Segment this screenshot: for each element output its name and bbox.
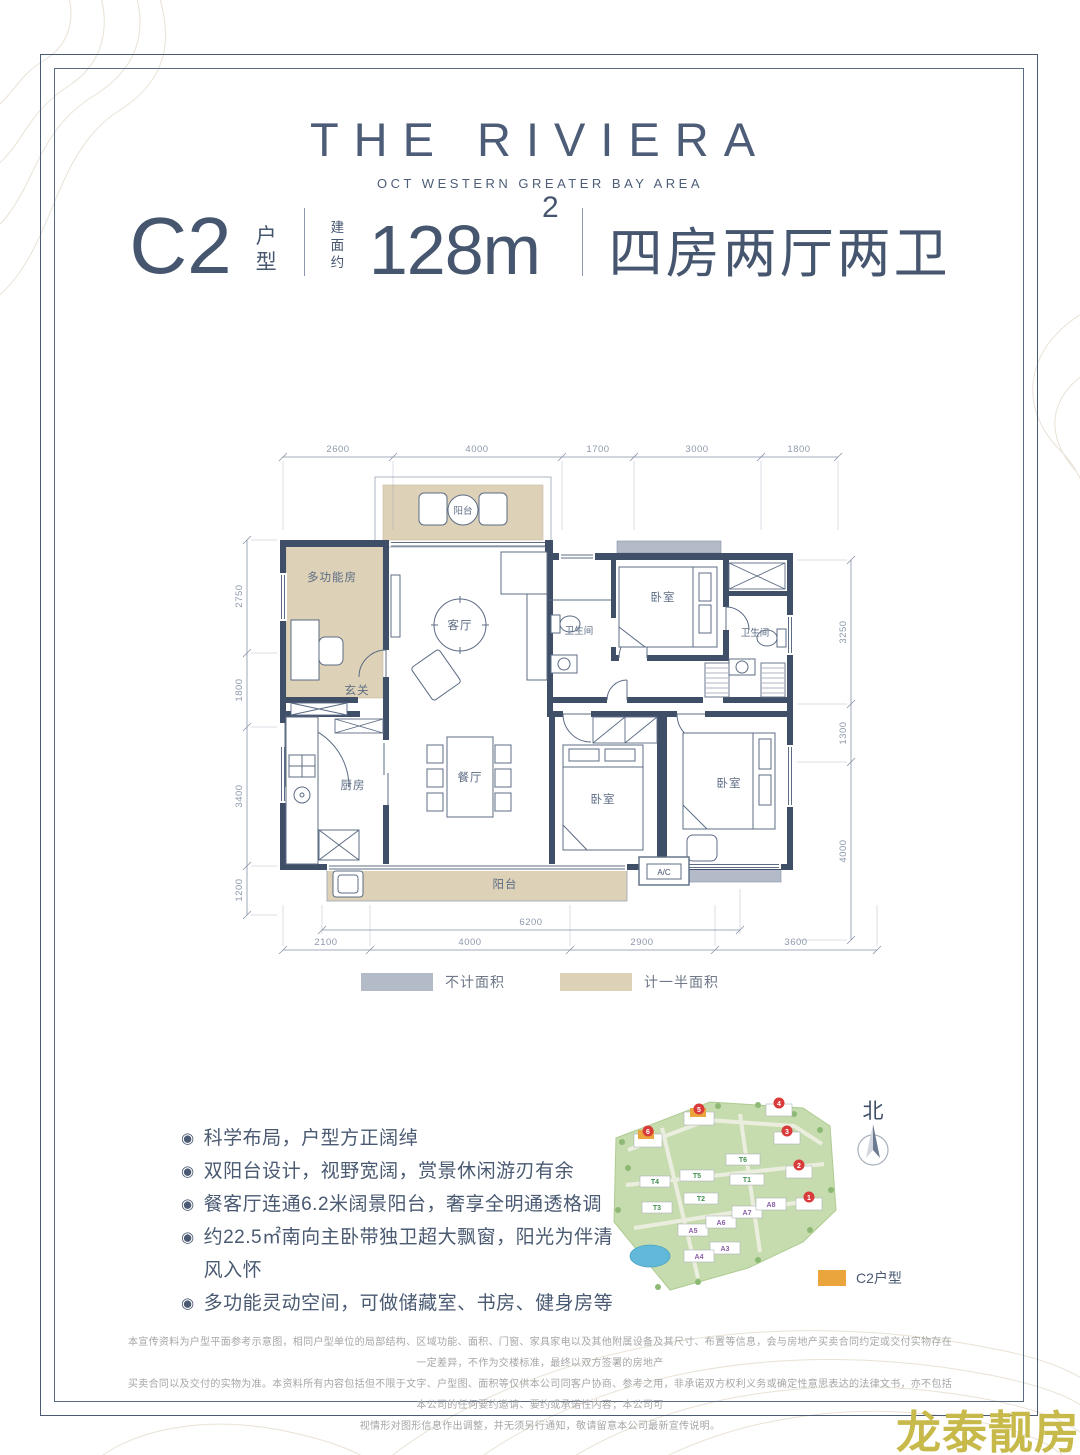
room-label-living: 客厅 [448, 618, 473, 632]
svg-text:6200: 6200 [519, 917, 542, 928]
project-title: THE RIVIERA [0, 112, 1080, 167]
watermark-logo: 龙泰靓房 [896, 1396, 1080, 1455]
area-exponent: 2 [542, 191, 558, 224]
feature-item: ◉双阳台设计，视野宽阔，赏景休闲游刃有余 [181, 1155, 631, 1188]
svg-text:1: 1 [807, 1195, 811, 1202]
svg-text:T1: T1 [743, 1177, 751, 1184]
svg-text:A6: A6 [717, 1220, 726, 1227]
room-label-entry: 玄关 [345, 683, 370, 697]
room-label-bedroom-top: 卧室 [651, 590, 676, 604]
svg-text:2: 2 [797, 1163, 801, 1170]
disclaimer-line-3: 视情形对图形信息作出调整，并无须另行通知，敬请留意本公司最新宣传说明。 [125, 1416, 955, 1437]
room-label-bedroom-mid: 卧室 [591, 792, 616, 806]
svg-text:T6: T6 [739, 1157, 747, 1164]
disclaimer-text: 本宣传资料为户型平面参考示意图，相同户型单位的局部结构、区域功能、面积、门窗、家… [125, 1332, 955, 1437]
excluded-area-label: 不计面积 [445, 972, 505, 992]
feature-list: ◉科学布局，户型方正阔绰 ◉双阳台设计，视野宽阔，赏景休闲游刃有余 ◉餐客厅连通… [181, 1122, 631, 1320]
room-label-balcony-bottom: 阳台 [493, 877, 518, 891]
svg-text:1700: 1700 [586, 444, 609, 455]
svg-text:2750: 2750 [234, 584, 245, 607]
unit-spec-row: C2 户型 建面约 128m2 四房两厅两卫 [0, 208, 1080, 280]
feature-item: ◉餐客厅连通6.2米阔景阳台，奢享全明通透格调 [181, 1188, 631, 1221]
feature-text: 约22.5㎡南向主卧带独卫超大飘窗，阳光为伴清风入怀 [204, 1221, 631, 1287]
north-label: 北 [863, 1100, 884, 1123]
project-subtitle: OCT WESTERN GREATER BAY AREA [0, 176, 1080, 191]
svg-text:1300: 1300 [838, 721, 849, 744]
area-legend: 不计面积 计一半面积 [0, 972, 1080, 992]
half-area-swatch [560, 973, 632, 991]
svg-text:6: 6 [646, 1129, 650, 1136]
svg-text:T5: T5 [693, 1173, 701, 1180]
bullet-icon: ◉ [181, 1221, 195, 1287]
floorplan-drawing: 阳台 多功能房 客厅 卫生间 卧室 卫生间 玄关 厨房 餐厅 卧室 卧室 阳台 … [215, 415, 895, 975]
unit-suffix: 户型 [256, 224, 278, 277]
room-label-bath2: 卫生间 [741, 627, 770, 639]
feature-text: 餐客厅连通6.2米阔景阳台，奢享全明通透格调 [204, 1188, 602, 1221]
svg-text:3: 3 [785, 1129, 789, 1136]
feature-text: 科学布局，户型方正阔绰 [204, 1122, 419, 1155]
feature-item: ◉科学布局，户型方正阔绰 [181, 1122, 631, 1155]
room-label-dining: 餐厅 [458, 770, 483, 784]
legend-item-excluded: 不计面积 [361, 972, 505, 992]
site-plan-map: T1 T2 T3 T4 T5 T6 A3 A4 A5 A6 A7 A8 1 2 … [598, 1090, 848, 1305]
brand-block: THE RIVIERA OCT WESTERN GREATER BAY AREA [0, 112, 1080, 191]
feature-item: ◉多功能灵动空间，可做储藏室、书房、健身房等 [181, 1287, 631, 1320]
feature-text: 多功能灵动空间，可做储藏室、书房、健身房等 [204, 1287, 614, 1320]
c2-unit-swatch [818, 1270, 846, 1286]
svg-text:A8: A8 [767, 1202, 776, 1209]
area-prefix: 建面约 [331, 219, 345, 272]
feature-text: 双阳台设计，视野宽阔，赏景休闲游刃有余 [204, 1155, 575, 1188]
room-label-bath1: 卫生间 [565, 625, 594, 637]
svg-text:T3: T3 [653, 1205, 661, 1212]
disclaimer-line-2: 买卖合同以及交付的实物为准。本资料所有内容包括但不限于文字、户型图、面积等仅供本… [125, 1374, 955, 1416]
svg-text:1200: 1200 [234, 878, 245, 901]
room-label-bedroom-right: 卧室 [717, 776, 742, 790]
svg-text:4: 4 [777, 1101, 781, 1108]
legend-item-half: 计一半面积 [560, 972, 719, 992]
room-label-balcony-top: 阳台 [453, 505, 472, 517]
spec-divider [304, 208, 305, 276]
room-label-kitchen: 厨房 [341, 779, 366, 792]
bullet-icon: ◉ [181, 1155, 195, 1188]
bullet-icon: ◉ [181, 1188, 195, 1221]
room-label-multi: 多功能房 [307, 570, 357, 584]
svg-text:A3: A3 [721, 1246, 730, 1253]
svg-text:A7: A7 [743, 1210, 752, 1217]
layout-text: 四房两厅两卫 [609, 229, 951, 280]
unit-code: C2 [129, 212, 231, 280]
poster-page: THE RIVIERA OCT WESTERN GREATER BAY AREA… [0, 0, 1080, 1455]
svg-text:3600: 3600 [784, 937, 807, 948]
bullet-icon: ◉ [181, 1287, 195, 1320]
svg-text:2900: 2900 [630, 937, 653, 948]
bullet-icon: ◉ [181, 1122, 195, 1155]
svg-text:T2: T2 [697, 1196, 705, 1203]
svg-text:4000: 4000 [838, 839, 849, 862]
svg-text:3000: 3000 [685, 444, 708, 455]
svg-text:5: 5 [697, 1107, 701, 1114]
spec-divider [582, 208, 583, 276]
excluded-area-swatch [361, 973, 433, 991]
svg-text:2600: 2600 [326, 444, 349, 455]
svg-text:A5: A5 [689, 1228, 698, 1235]
north-indicator: 北 [843, 1096, 903, 1181]
disclaimer-line-1: 本宣传资料为户型平面参考示意图，相同户型单位的局部结构、区域功能、面积、门窗、家… [125, 1332, 955, 1374]
room-label-ac: A/C [657, 868, 671, 877]
svg-text:A4: A4 [695, 1254, 704, 1261]
c2-unit-label: C2户型 [856, 1268, 902, 1288]
feature-item: ◉约22.5㎡南向主卧带独卫超大飘窗，阳光为伴清风入怀 [181, 1221, 631, 1287]
svg-text:4000: 4000 [465, 444, 488, 455]
site-pool [630, 1245, 670, 1267]
svg-text:1800: 1800 [234, 678, 245, 701]
svg-text:3250: 3250 [838, 620, 849, 643]
svg-text:1800: 1800 [787, 444, 810, 455]
svg-text:T4: T4 [651, 1179, 659, 1186]
svg-text:4000: 4000 [458, 937, 481, 948]
svg-text:3400: 3400 [234, 784, 245, 807]
compass-icon [858, 1124, 888, 1165]
half-area-label: 计一半面积 [644, 972, 719, 992]
svg-text:2100: 2100 [314, 937, 337, 948]
c2-unit-legend: C2户型 [818, 1268, 902, 1288]
area-value: 128m2 [369, 221, 556, 281]
